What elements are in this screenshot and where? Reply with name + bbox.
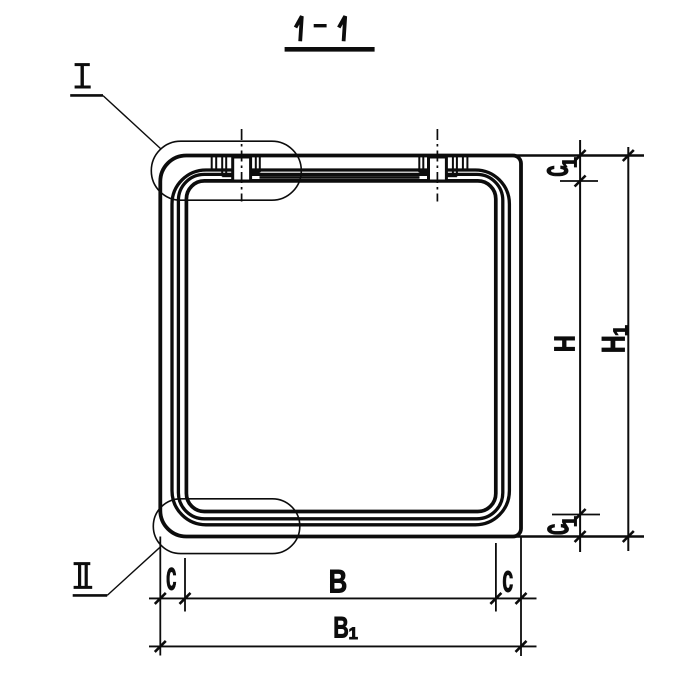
svg-text:B: B xyxy=(329,565,348,600)
svg-text:c: c xyxy=(502,559,513,600)
svg-text:1: 1 xyxy=(611,325,633,336)
svg-text:H: H xyxy=(597,335,633,353)
svg-text:H: H xyxy=(548,335,581,352)
svg-text:B: B xyxy=(333,612,349,644)
svg-text:1: 1 xyxy=(560,157,582,168)
svg-text:c: c xyxy=(166,552,176,598)
svg-text:1: 1 xyxy=(560,516,582,527)
svg-text:1: 1 xyxy=(349,624,358,643)
